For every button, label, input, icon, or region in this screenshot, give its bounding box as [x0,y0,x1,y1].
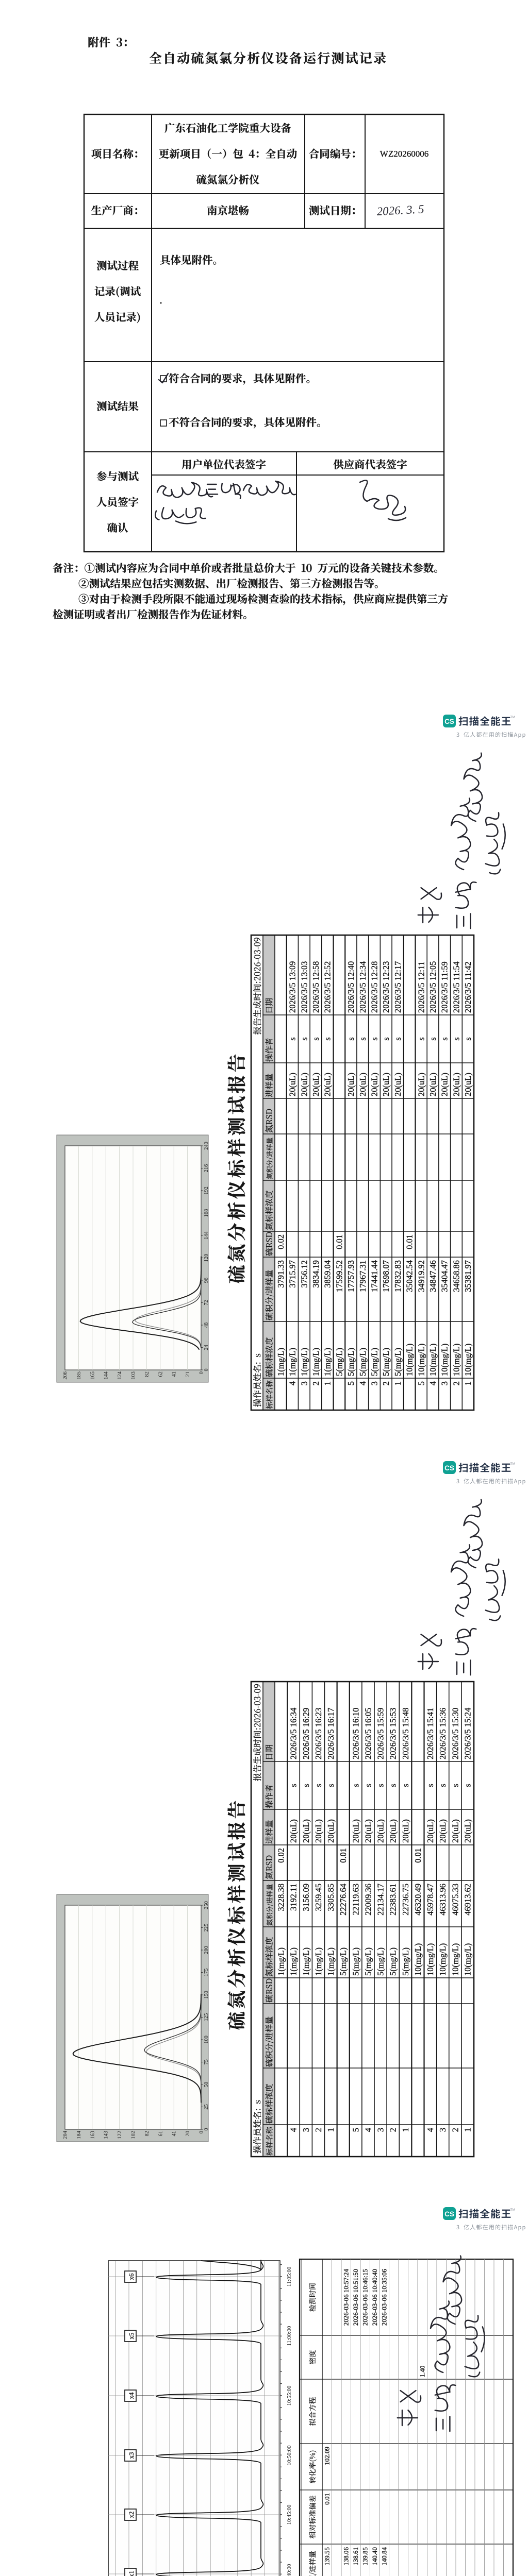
svg-text:2026/3/5 12:11: 2026/3/5 12:11 [416,961,426,1013]
svg-text:2: 2 [451,1381,461,1385]
svg-text:s: s [381,1037,391,1040]
svg-text:50: 50 [204,2082,209,2088]
svg-text:s: s [289,1784,299,1787]
svg-text:11:00:00: 11:00:00 [286,2326,292,2346]
svg-text:3859.04: 3859.04 [323,1260,333,1288]
svg-text:206: 206 [63,1371,69,1380]
svg-text:20(uL): 20(uL) [381,1073,391,1096]
svg-text:3305.85: 3305.85 [326,1884,336,1911]
svg-text:4: 4 [288,1381,298,1385]
svg-text:3715.97: 3715.97 [288,1260,298,1288]
svg-text:20(uL): 20(uL) [463,1819,472,1843]
svg-text:s: s [450,1784,460,1787]
svg-text:2026/3/5 15:53: 2026/3/5 15:53 [388,1708,398,1759]
svg-text:150: 150 [204,1991,209,1999]
svg-text:2026/3/5 16:05: 2026/3/5 16:05 [363,1708,373,1759]
svg-text:41: 41 [172,1371,177,1377]
svg-text:20(uL): 20(uL) [370,1073,379,1096]
svg-text:s: s [313,1784,323,1787]
svg-text:2026/3/5 11:42: 2026/3/5 11:42 [463,961,473,1013]
svg-text:34919.92: 34919.92 [416,1260,426,1292]
svg-text:0.01: 0.01 [334,1234,344,1249]
svg-text:5: 5 [416,1381,426,1385]
svg-text:x1: x1 [127,2571,135,2576]
svg-text:1(mg/L): 1(mg/L) [299,1348,309,1376]
svg-text:2026/3/5 16:23: 2026/3/5 16:23 [313,1708,323,1759]
svg-text:20(uL): 20(uL) [299,1073,309,1096]
svg-text:34658.86: 34658.86 [451,1260,461,1292]
svg-text:200: 200 [204,1946,209,1954]
svg-text:144: 144 [204,1231,209,1240]
svg-text:4: 4 [363,2128,373,2132]
svg-text:10(mg/L): 10(mg/L) [463,1344,473,1376]
svg-text:0.01: 0.01 [405,1234,415,1249]
svg-text:163: 163 [90,2131,95,2139]
svg-text:2026/3/5 15:24: 2026/3/5 15:24 [463,1708,472,1759]
svg-text:0.01: 0.01 [338,1848,348,1863]
svg-text:20(uL): 20(uL) [393,1073,403,1096]
svg-text:s: s [388,1784,398,1787]
svg-text:s: s [428,1037,438,1040]
svg-text:192: 192 [204,1187,209,1195]
svg-text:10(mg/L): 10(mg/L) [463,1943,472,1976]
svg-text:20(uL): 20(uL) [358,1073,368,1096]
svg-text:2026/3/5 13:03: 2026/3/5 13:03 [299,961,309,1013]
svg-text:20: 20 [185,2131,191,2137]
svg-text:2026/3/5 15:59: 2026/3/5 15:59 [376,1708,386,1759]
svg-text:20(uL): 20(uL) [440,1073,450,1096]
svg-text:s: s [438,1784,448,1787]
svg-text:17757.93: 17757.93 [346,1260,356,1292]
svg-text:s: s [425,1784,435,1787]
svg-text:10(mg/L): 10(mg/L) [450,1943,460,1976]
svg-text:2: 2 [450,2128,460,2132]
svg-text:s: s [351,1784,360,1787]
svg-text:20(uL): 20(uL) [463,1073,473,1096]
svg-text:4: 4 [425,2128,435,2132]
svg-text:240: 240 [204,1142,209,1150]
svg-text:5(mg/L): 5(mg/L) [358,1348,368,1376]
svg-text:184: 184 [76,2130,82,2139]
svg-text:0: 0 [199,1371,205,1374]
svg-text:20(uL): 20(uL) [311,1073,321,1096]
svg-text:0: 0 [199,2131,205,2133]
svg-text:10(mg/L): 10(mg/L) [413,1943,423,1976]
svg-text:1: 1 [393,1381,403,1385]
svg-text:5(mg/L): 5(mg/L) [401,1947,410,1976]
svg-text:3756.12: 3756.12 [299,1260,309,1288]
svg-text:CS: CS [444,1464,454,1472]
svg-text:1(mg/L): 1(mg/L) [276,1947,286,1976]
svg-text:20(uL): 20(uL) [428,1073,438,1096]
svg-text:2026-03-06 10:35:06: 2026-03-06 10:35:06 [381,2268,388,2326]
svg-text:10:55:00: 10:55:00 [286,2385,292,2406]
svg-text:2: 2 [381,1381,391,1385]
svg-text:204: 204 [63,2130,69,2139]
svg-text:3259.45: 3259.45 [313,1884,323,1911]
svg-text:2026. 3. 5: 2026. 3. 5 [376,202,424,218]
svg-text:125: 125 [204,2013,209,2022]
svg-text:s: s [376,1784,386,1787]
svg-text:3: 3 [440,1381,450,1385]
svg-text:2026/3/5 12:40: 2026/3/5 12:40 [346,961,356,1013]
svg-text:0.01: 0.01 [323,2493,331,2505]
svg-text:25: 25 [204,2104,209,2110]
svg-text:20(uL): 20(uL) [288,1073,298,1096]
svg-text:62: 62 [158,1371,163,1377]
svg-text:s: s [416,1037,426,1040]
svg-text:s: s [288,1037,298,1040]
svg-text:10:50:00: 10:50:00 [286,2445,292,2466]
svg-text:82: 82 [144,1371,150,1377]
svg-text:2026/3/5 15:41: 2026/3/5 15:41 [425,1708,435,1759]
svg-text:20(uL): 20(uL) [301,1819,311,1843]
svg-text:3: 3 [301,2128,311,2132]
svg-text:20(uL): 20(uL) [416,1073,426,1096]
svg-text:17967.31: 17967.31 [358,1260,368,1292]
svg-text:2026/3/5 13:09: 2026/3/5 13:09 [288,961,298,1013]
svg-text:20(uL): 20(uL) [451,1073,461,1096]
svg-text:2026-03-06 10:40:40: 2026-03-06 10:40:40 [371,2269,378,2326]
svg-text:5(mg/L): 5(mg/L) [363,1947,373,1976]
svg-text:140.40: 140.40 [371,2547,378,2566]
svg-text:138.61: 138.61 [352,2547,359,2566]
svg-text:3: 3 [438,2128,448,2132]
svg-text:22134.17: 22134.17 [376,1884,386,1916]
svg-text:2026/3/5 12:28: 2026/3/5 12:28 [370,961,379,1013]
svg-text:3: 3 [376,2128,386,2132]
svg-text:2026-03-06 10:46:15: 2026-03-06 10:46:15 [361,2269,369,2326]
svg-text:20(uL): 20(uL) [425,1819,435,1843]
svg-text:48: 48 [204,1323,209,1328]
svg-text:1(mg/L): 1(mg/L) [326,1947,336,1976]
svg-text:10(mg/L): 10(mg/L) [405,1344,415,1376]
svg-text:10(mg/L): 10(mg/L) [451,1344,461,1376]
svg-text:5(mg/L): 5(mg/L) [370,1348,379,1376]
svg-text:102.09: 102.09 [323,2447,331,2465]
svg-text:82: 82 [144,2131,150,2137]
svg-text:x5: x5 [127,2333,135,2340]
svg-text:20(uL): 20(uL) [401,1819,410,1843]
svg-text:46913.62: 46913.62 [463,1884,472,1916]
svg-text:20(uL): 20(uL) [351,1819,360,1843]
svg-text:s: s [363,1784,373,1787]
svg-text:21: 21 [185,1371,191,1377]
svg-text:2026/3/5 15:36: 2026/3/5 15:36 [438,1708,448,1759]
svg-text:5(mg/L): 5(mg/L) [351,1947,360,1976]
svg-text:s: s [401,1784,410,1787]
svg-text:WZ20260006: WZ20260006 [380,149,428,159]
svg-text:1(mg/L): 1(mg/L) [288,1348,298,1376]
svg-text:1: 1 [323,1381,333,1385]
svg-text:2026/3/5 16:29: 2026/3/5 16:29 [301,1708,311,1759]
svg-text:2026/3/5 16:17: 2026/3/5 16:17 [326,1708,336,1759]
svg-text:10(mg/L): 10(mg/L) [416,1344,426,1376]
svg-text:5(mg/L): 5(mg/L) [393,1348,403,1376]
svg-text:3: 3 [370,1381,379,1385]
svg-text:225: 225 [204,1924,209,1932]
svg-text:2026/3/5 12:52: 2026/3/5 12:52 [323,961,333,1013]
svg-text:1: 1 [463,2128,472,2132]
svg-text:1(mg/L): 1(mg/L) [289,1947,299,1976]
svg-text:CS: CS [444,2210,454,2218]
svg-text:4: 4 [358,1381,368,1385]
svg-text:35042.54: 35042.54 [405,1260,415,1292]
svg-text:20(uL): 20(uL) [289,1819,299,1843]
svg-text:2026-03-06 10:51:50: 2026-03-06 10:51:50 [352,2269,359,2326]
svg-text:46313.96: 46313.96 [438,1884,448,1916]
svg-text:0.01: 0.01 [413,1848,423,1863]
svg-text:3791.33: 3791.33 [276,1260,286,1288]
svg-text:124: 124 [117,1371,123,1380]
svg-text:140.84: 140.84 [381,2547,388,2566]
svg-text:s: s [326,1784,336,1787]
svg-text:120: 120 [204,1254,209,1262]
svg-text:2026/3/5 15:30: 2026/3/5 15:30 [450,1708,460,1759]
svg-text:5(mg/L): 5(mg/L) [334,1348,344,1376]
svg-text:17599.52: 17599.52 [334,1260,344,1292]
svg-text:10(mg/L): 10(mg/L) [440,1344,450,1376]
svg-text:0.02: 0.02 [276,1234,286,1249]
svg-text:17832.83: 17832.83 [393,1260,403,1292]
svg-text:22276.64: 22276.64 [338,1884,348,1916]
svg-text:96: 96 [204,1278,209,1283]
svg-text:4: 4 [428,1381,438,1385]
svg-text:103: 103 [131,1371,137,1380]
svg-text:5(mg/L): 5(mg/L) [376,1947,386,1976]
svg-text:3192.11: 3192.11 [289,1884,299,1911]
svg-text:0: 0 [204,2128,209,2130]
svg-text:2026/3/5 11:54: 2026/3/5 11:54 [451,961,461,1013]
svg-text:x3: x3 [127,2452,135,2459]
svg-text:41: 41 [172,2131,177,2137]
svg-text:10(mg/L): 10(mg/L) [428,1344,438,1376]
svg-text:3156.09: 3156.09 [301,1884,311,1911]
svg-text:1(mg/L): 1(mg/L) [276,1348,286,1376]
svg-text:185: 185 [76,1371,82,1380]
svg-text:20(uL): 20(uL) [326,1819,336,1843]
svg-text:3228.38: 3228.38 [276,1884,286,1911]
svg-text:2026/3/5 12:58: 2026/3/5 12:58 [311,961,321,1013]
svg-text:x6: x6 [127,2273,135,2280]
svg-text:s: s [451,1037,461,1040]
svg-text:35381.97: 35381.97 [463,1260,473,1292]
svg-text:20(uL): 20(uL) [363,1819,373,1843]
svg-text:TM: TM [510,1462,515,1466]
svg-text:10(mg/L): 10(mg/L) [425,1943,435,1976]
svg-text:20(uL): 20(uL) [313,1819,323,1843]
svg-text:1: 1 [326,2128,336,2132]
svg-text:22736.75: 22736.75 [401,1884,410,1916]
svg-text:168: 168 [204,1209,209,1217]
svg-text:1(mg/L): 1(mg/L) [301,1947,311,1976]
svg-text:3834.19: 3834.19 [311,1260,321,1288]
svg-text:216: 216 [204,1164,209,1173]
svg-text:250: 250 [204,1901,209,1909]
svg-text:CS: CS [444,718,454,725]
svg-text:s: s [463,1037,473,1040]
svg-text:10:40:00: 10:40:00 [286,2564,292,2576]
svg-text:10(mg/L): 10(mg/L) [438,1943,448,1976]
svg-text:2: 2 [388,2128,398,2132]
svg-text:s: s [440,1037,450,1040]
svg-text:138.06: 138.06 [342,2547,350,2566]
svg-text:2026/3/5 12:05: 2026/3/5 12:05 [428,961,438,1013]
svg-text:2026/3/5 15:48: 2026/3/5 15:48 [401,1708,410,1759]
svg-text:TM: TM [510,2208,515,2212]
svg-text:139.55: 139.55 [323,2547,331,2566]
svg-text:s: s [346,1037,356,1040]
svg-text:139.85: 139.85 [361,2547,369,2566]
svg-text:100: 100 [204,2036,209,2044]
svg-text:46320.49: 46320.49 [413,1884,423,1916]
svg-text:5(mg/L): 5(mg/L) [381,1348,391,1376]
svg-text:75: 75 [204,2059,209,2065]
svg-text:s: s [358,1037,368,1040]
svg-text:s: s [311,1037,321,1040]
svg-text:1(mg/L): 1(mg/L) [323,1348,333,1376]
svg-text:1: 1 [401,2128,410,2132]
svg-text:144: 144 [104,1371,109,1380]
svg-text:4: 4 [289,2128,299,2132]
svg-text:x4: x4 [127,2392,135,2399]
svg-text:5(mg/L): 5(mg/L) [388,1947,398,1976]
svg-text:46075.33: 46075.33 [450,1884,460,1916]
svg-text:122: 122 [117,2131,123,2139]
svg-text:2026/3/5 12:34: 2026/3/5 12:34 [358,961,368,1013]
svg-text:2: 2 [311,1381,321,1385]
svg-text:22383.61: 22383.61 [388,1884,398,1916]
svg-text:5(mg/L): 5(mg/L) [346,1348,356,1376]
svg-text:2: 2 [313,2128,323,2132]
svg-text:61: 61 [158,2131,163,2137]
svg-text:17698.07: 17698.07 [381,1260,391,1292]
svg-text:22119.63: 22119.63 [351,1884,360,1915]
svg-text:20(uL): 20(uL) [346,1073,356,1096]
svg-text:s: s [370,1037,379,1040]
svg-text:20(uL): 20(uL) [450,1819,460,1843]
svg-text:10:45:00: 10:45:00 [286,2504,292,2525]
svg-text:72: 72 [204,1300,209,1306]
svg-text:24: 24 [204,1345,209,1350]
svg-text:143: 143 [104,2131,109,2139]
svg-text:34847.46: 34847.46 [428,1260,438,1292]
svg-text:20(uL): 20(uL) [376,1819,386,1843]
svg-text:165: 165 [90,1371,95,1380]
svg-text:35404.47: 35404.47 [440,1260,450,1292]
svg-text:175: 175 [204,1969,209,1977]
svg-text:s: s [463,1784,472,1787]
svg-text:1.40: 1.40 [419,2366,426,2378]
svg-text:5: 5 [351,2128,360,2132]
svg-text:TM: TM [510,716,515,719]
svg-text:s: s [393,1037,403,1040]
svg-text:s: s [299,1037,309,1040]
svg-text:2026/3/5 12:17: 2026/3/5 12:17 [393,961,403,1013]
svg-text:11:05:00: 11:05:00 [286,2266,292,2286]
svg-text:0.02: 0.02 [276,1848,286,1863]
svg-text:20(uL): 20(uL) [388,1819,398,1843]
svg-text:0: 0 [204,1368,209,1371]
svg-text:s: s [323,1037,333,1040]
svg-text:20(uL): 20(uL) [438,1819,448,1843]
svg-text:5: 5 [346,1381,356,1385]
svg-text:1: 1 [463,1381,473,1385]
svg-text:22009.36: 22009.36 [363,1884,373,1916]
svg-text:45978.47: 45978.47 [425,1884,435,1916]
svg-text:3: 3 [299,1381,309,1385]
svg-text:2026/3/5 12:23: 2026/3/5 12:23 [381,961,391,1013]
svg-text:2026/3/5 16:34: 2026/3/5 16:34 [289,1708,299,1759]
svg-text:x2: x2 [127,2512,135,2518]
svg-text:17441.44: 17441.44 [370,1260,379,1292]
svg-text:s: s [301,1784,311,1787]
svg-text:2026/3/5 16:10: 2026/3/5 16:10 [351,1708,360,1759]
svg-text:1(mg/L): 1(mg/L) [311,1348,321,1376]
svg-text:2026-03-06 10:57:24: 2026-03-06 10:57:24 [342,2268,350,2326]
svg-text:20(uL): 20(uL) [323,1073,333,1096]
svg-text:102: 102 [131,2131,137,2139]
svg-text:2026/3/5 11:59: 2026/3/5 11:59 [440,961,450,1013]
svg-text:5(mg/L): 5(mg/L) [338,1947,348,1976]
svg-text:1(mg/L): 1(mg/L) [313,1947,323,1976]
